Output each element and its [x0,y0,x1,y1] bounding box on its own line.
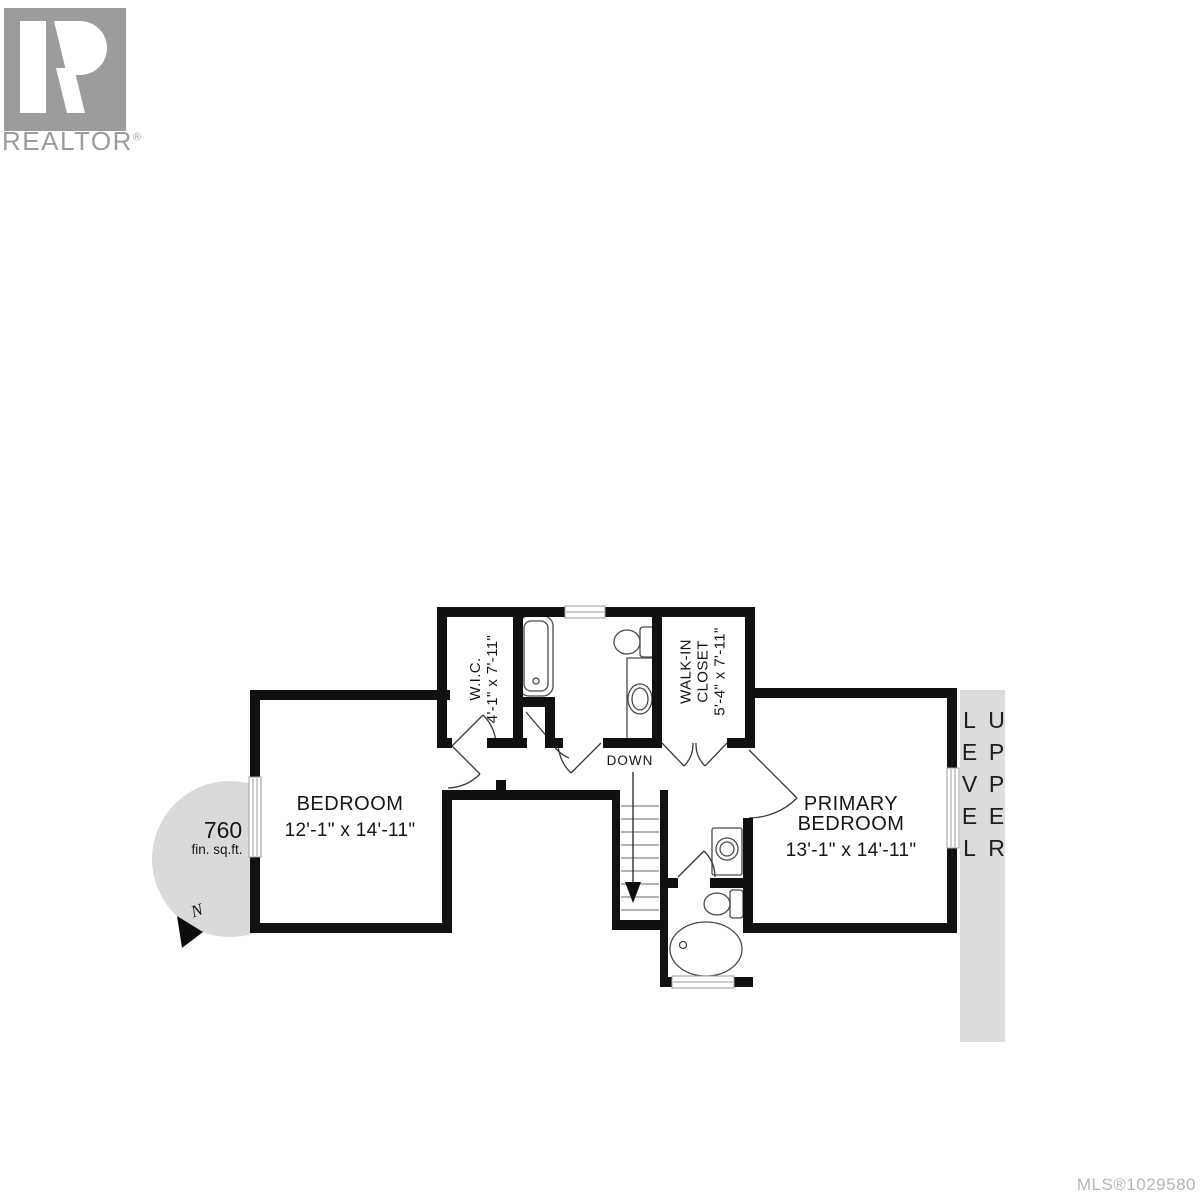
laundry-appliance-icon [712,828,742,875]
window-bath-top [565,606,605,618]
floor-plan-drawing [0,0,1200,1200]
vanity-sink-icon [627,658,653,740]
stairs-down-label: DOWN [594,753,666,768]
area-unit: fin. sq.ft. [167,842,267,857]
bedroom-label: BEDROOM 12'-1" x 14'-11" [258,794,442,840]
primary-bedroom-dims: 13'-1" x 14'-11" [748,841,954,860]
window-ensuite-bottom [672,976,734,988]
toilet-icon [614,627,654,657]
door-swing-closet [662,743,727,766]
bedroom-name: BEDROOM [258,794,442,814]
walk-in-closet-label: WALK-IN CLOSET 5'-4" x 7'-11" [678,601,729,743]
bedroom-dims: 12'-1" x 14'-11" [258,821,442,840]
stairs [621,806,659,910]
walk-in-closet-dims: 5'-4" x 7'-11" [712,601,729,743]
walk-in-closet-name-line2: CLOSET [695,601,712,743]
wic-label: W.I.C. 4'-1" x 7'-11" [467,609,501,749]
bathtub-icon [519,616,553,696]
floor-plan-page: REALTOR® [0,0,1200,1200]
upper-level-label: UPPER LEVEL [956,690,1010,1042]
wic-name: W.I.C. [467,609,484,749]
walk-in-closet-name-line1: WALK-IN [678,601,695,743]
mls-number: MLS®1029580 [996,1175,1196,1195]
upper-level-band: UPPER LEVEL [960,690,1005,1042]
ensuite-toilet-icon [704,890,743,918]
wic-dims: 4'-1" x 7'-11" [484,609,501,749]
area-value: 760 [173,817,273,844]
door-swing-ensuite [678,851,715,877]
primary-bedroom-label: PRIMARY BEDROOM 13'-1" x 14'-11" [748,794,954,860]
down-arrow-icon [625,772,641,903]
primary-bedroom-name: PRIMARY BEDROOM [748,794,954,834]
oval-bathtub-icon [670,922,742,976]
